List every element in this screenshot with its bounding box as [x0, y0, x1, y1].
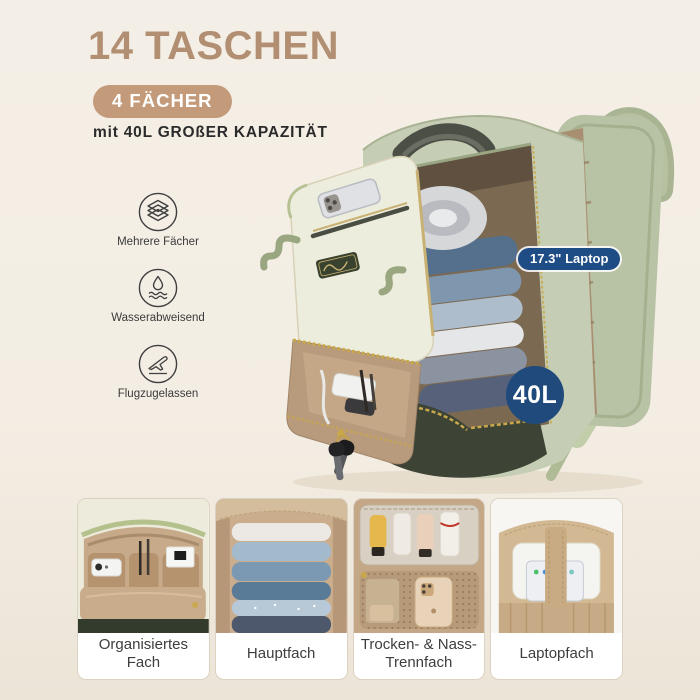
- card-dry-wet-compartment: Trocken- & Nass-Trennfach: [353, 498, 486, 680]
- page-title: 14 TASCHEN: [88, 24, 339, 69]
- pocket-count-badge: 4 FÄCHER: [93, 85, 232, 118]
- feature-label: Wasserabweisend: [96, 311, 220, 326]
- feature-flight-approved: Flugzugelassen: [96, 344, 220, 402]
- feature-label: Flugzugelassen: [96, 387, 220, 402]
- main-compartment-photo: [216, 499, 347, 633]
- airplane-icon: [138, 344, 178, 384]
- feature-label: Mehrere Fächer: [96, 235, 220, 250]
- laptop-size-badge: 17.3" Laptop: [518, 248, 620, 270]
- dry-wet-photo: [354, 499, 485, 633]
- feature-water-repellent: Wasserabweisend: [96, 268, 220, 326]
- water-drop-icon: [138, 268, 178, 308]
- backpack-photo: [233, 94, 693, 498]
- feature-multiple-compartments: Mehrere Fächer: [96, 192, 220, 250]
- card-label: Organisiertes Fach: [78, 633, 209, 679]
- compartment-cards: Organisiertes Fach: [77, 498, 623, 680]
- layers-icon: [138, 192, 178, 232]
- card-organized-pocket: Organisiertes Fach: [77, 498, 210, 680]
- capacity-badge: 40L: [506, 366, 564, 424]
- laptop-compartment-photo: [491, 499, 622, 633]
- card-label: Hauptfach: [216, 633, 347, 679]
- card-label: Trocken- & Nass-Trennfach: [354, 633, 485, 679]
- organized-pocket-photo: [78, 499, 209, 633]
- product-infographic: 14 TASCHEN 4 FÄCHER mit 40L GROßER KAPAZ…: [0, 0, 700, 700]
- card-laptop-compartment: Laptopfach: [490, 498, 623, 680]
- card-main-compartment: Hauptfach: [215, 498, 348, 680]
- card-label: Laptopfach: [491, 633, 622, 679]
